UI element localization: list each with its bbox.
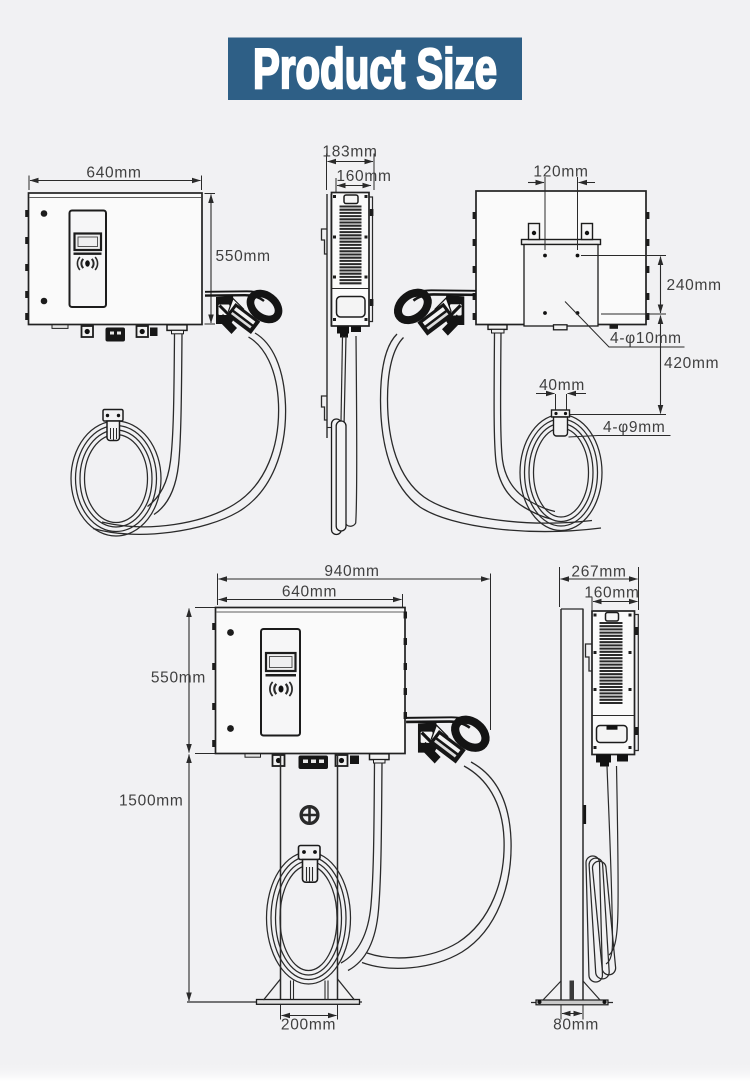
svg-text:40mm: 40mm [539,377,585,394]
svg-text:550mm: 550mm [151,670,206,687]
svg-text:200mm: 200mm [281,1017,336,1034]
svg-text:240mm: 240mm [667,277,722,294]
svg-text:1500mm: 1500mm [119,793,184,810]
svg-text:80mm: 80mm [553,1017,599,1034]
svg-text:183mm: 183mm [322,144,377,161]
svg-text:940mm: 940mm [324,563,379,580]
svg-text:267mm: 267mm [571,564,626,581]
svg-text:160mm: 160mm [336,168,391,185]
svg-text:160mm: 160mm [584,585,639,602]
svg-text:640mm: 640mm [86,165,141,182]
svg-text:640mm: 640mm [282,584,337,601]
svg-text:120mm: 120mm [533,164,588,181]
svg-text:420mm: 420mm [664,355,719,372]
svg-text:4-φ10mm: 4-φ10mm [610,330,682,347]
svg-text:4-φ9mm: 4-φ9mm [603,419,665,436]
svg-text:550mm: 550mm [216,248,271,265]
svg-text:Product Size: Product Size [253,37,497,101]
